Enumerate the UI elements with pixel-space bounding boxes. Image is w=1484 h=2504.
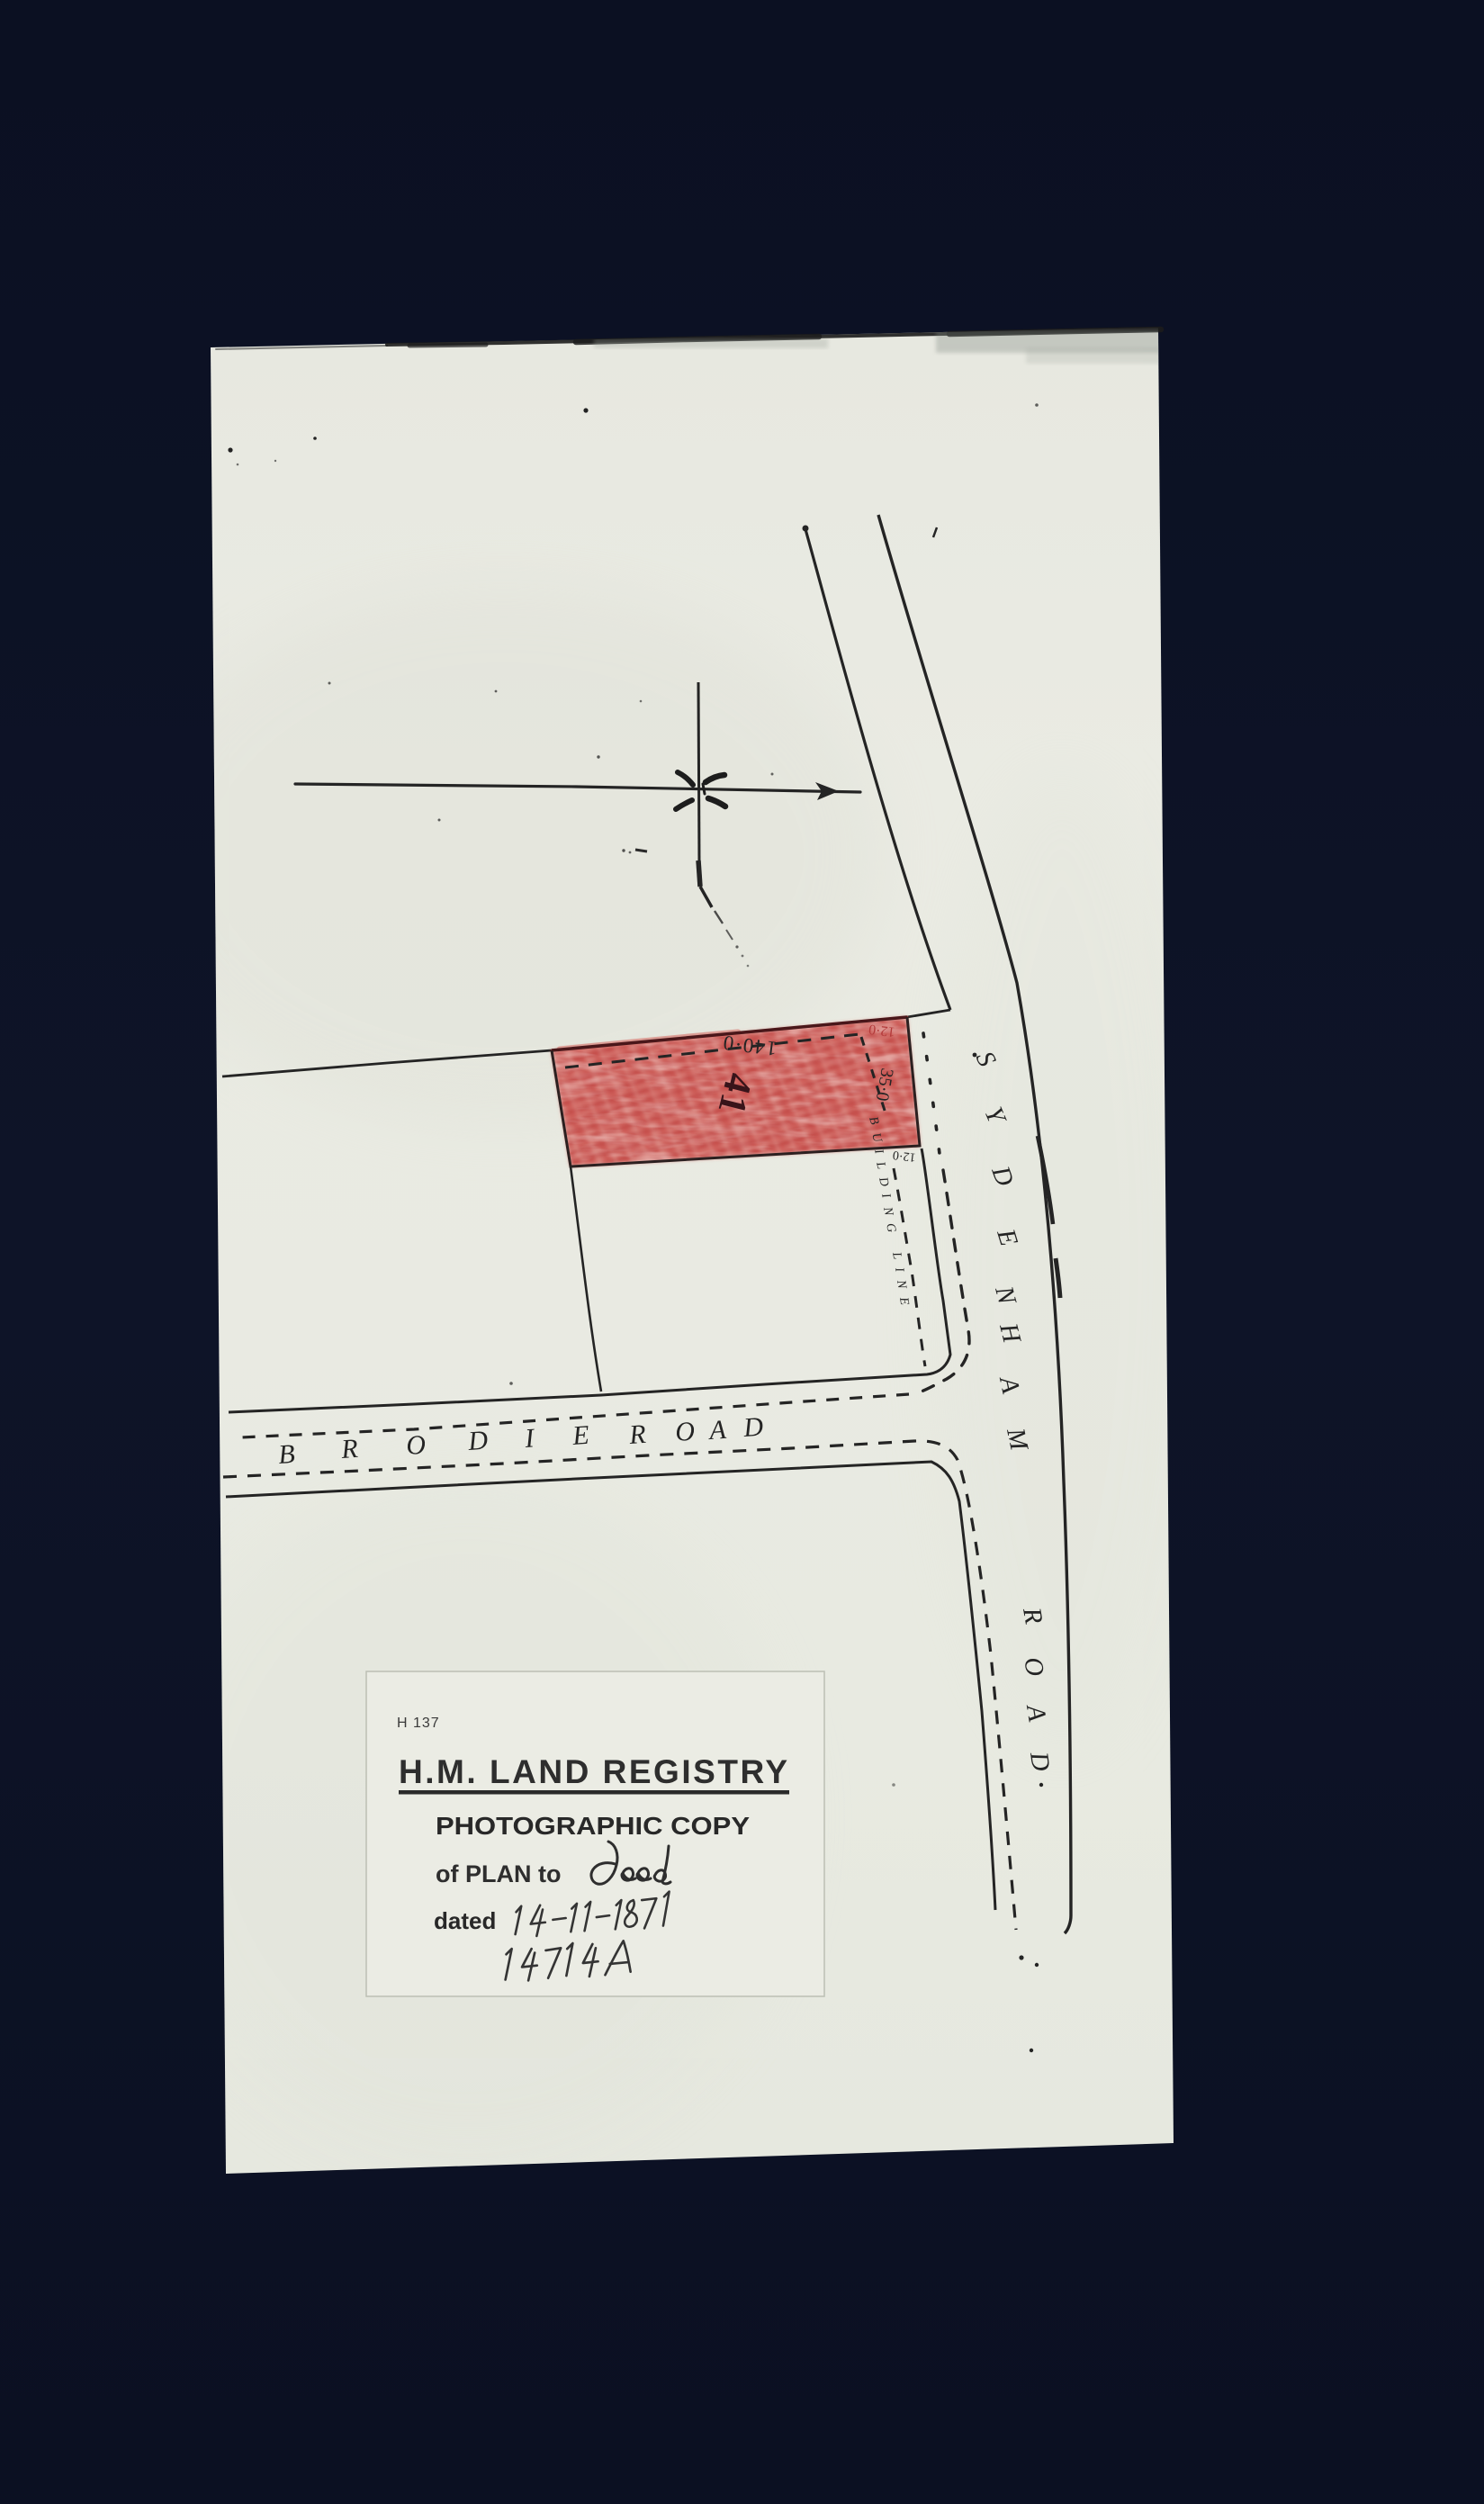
svg-text:PHOTOGRAPHIC COPY: PHOTOGRAPHIC COPY xyxy=(436,1812,750,1840)
svg-text:A: A xyxy=(706,1415,727,1446)
svg-text:of PLAN to: of PLAN to xyxy=(436,1860,561,1887)
svg-text:H.M. LAND REGISTRY: H.M. LAND REGISTRY xyxy=(399,1753,787,1790)
svg-text:B: B xyxy=(277,1439,296,1470)
svg-text:dated: dated xyxy=(434,1907,496,1934)
svg-text:O: O xyxy=(405,1430,427,1461)
svg-text:R: R xyxy=(339,1434,359,1464)
svg-text:D: D xyxy=(742,1412,764,1444)
svg-text:E: E xyxy=(571,1420,590,1451)
svg-text:D: D xyxy=(466,1426,489,1457)
svg-text:O: O xyxy=(674,1417,696,1447)
svg-text:D: D xyxy=(1024,1750,1056,1773)
svg-text:12·0: 12·0 xyxy=(868,1021,895,1039)
svg-text:H 137: H 137 xyxy=(397,1716,440,1731)
svg-text:R: R xyxy=(627,1419,647,1450)
svg-text:12·0: 12·0 xyxy=(892,1148,916,1164)
